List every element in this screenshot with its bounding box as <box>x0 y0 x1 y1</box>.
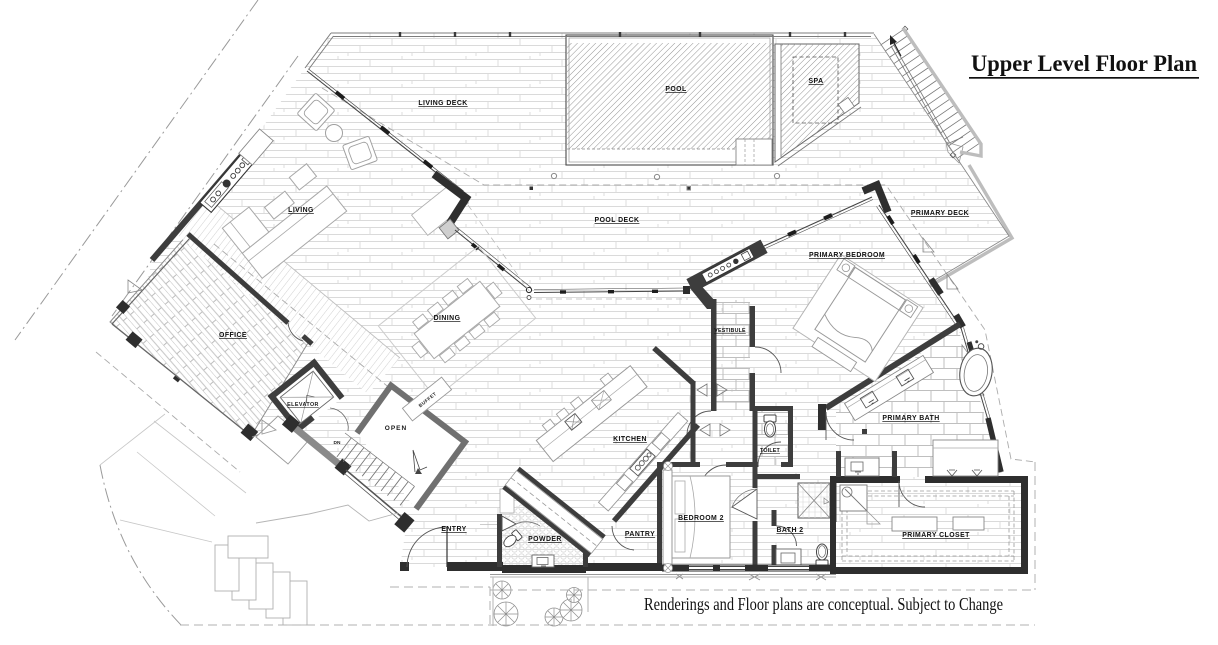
svg-text:LIVING: LIVING <box>288 207 314 214</box>
svg-text:Renderings and Floor plans are: Renderings and Floor plans are conceptua… <box>644 594 1003 614</box>
svg-text:DINING: DINING <box>434 315 461 322</box>
svg-text:PRIMARY CLOSET: PRIMARY CLOSET <box>902 532 970 539</box>
svg-text:SPA: SPA <box>808 78 823 85</box>
svg-text:TOILET: TOILET <box>760 448 781 454</box>
svg-text:Upper Level Floor Plan: Upper Level Floor Plan <box>971 51 1197 77</box>
svg-text:VESTIBULE: VESTIBULE <box>714 328 746 334</box>
svg-text:POOL: POOL <box>665 86 686 93</box>
svg-text:BEDROOM 2: BEDROOM 2 <box>678 515 724 522</box>
svg-text:OPEN: OPEN <box>385 425 407 432</box>
svg-text:POWDER: POWDER <box>528 536 562 543</box>
svg-text:BATH 2: BATH 2 <box>776 527 803 534</box>
svg-text:POOL DECK: POOL DECK <box>595 217 640 224</box>
svg-text:DN: DN <box>334 440 341 446</box>
svg-text:LIVING DECK: LIVING DECK <box>418 100 467 107</box>
svg-text:PRIMARY BEDROOM: PRIMARY BEDROOM <box>809 252 885 259</box>
svg-text:PRIMARY BATH: PRIMARY BATH <box>882 415 939 422</box>
svg-text:OFFICE: OFFICE <box>219 332 247 339</box>
svg-text:PANTRY: PANTRY <box>625 531 655 538</box>
svg-text:ENTRY: ENTRY <box>441 526 466 533</box>
svg-text:KITCHEN: KITCHEN <box>613 436 647 443</box>
svg-text:ELEVATOR: ELEVATOR <box>287 402 319 408</box>
svg-text:PRIMARY DECK: PRIMARY DECK <box>911 210 969 217</box>
